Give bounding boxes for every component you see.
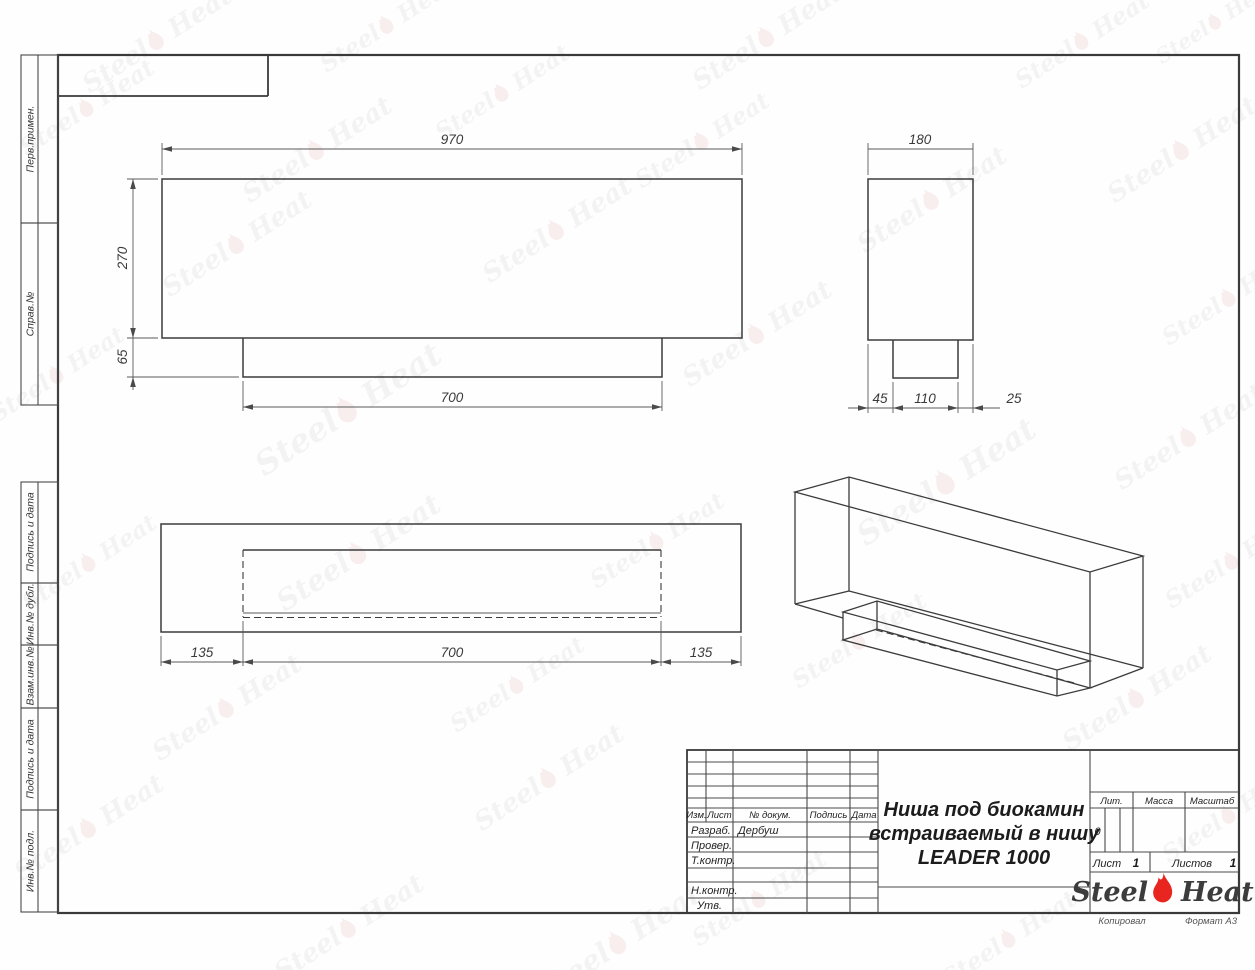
svg-text:Steel: Steel [315, 18, 386, 78]
flame-icon [1153, 873, 1172, 902]
svg-text:Heat: Heat [937, 141, 1013, 205]
tb-scale-label: Масштаб [1190, 796, 1235, 807]
svg-text:Heat: Heat [1233, 243, 1255, 301]
watermark: SteelHeat [445, 630, 590, 738]
svg-text:Steel: Steel [585, 534, 656, 594]
watermark: SteelHeat [850, 411, 1043, 554]
svg-text:Steel: Steel [270, 545, 357, 618]
svg-text:Steel: Steel [530, 935, 617, 970]
watermark: SteelHeat [630, 86, 775, 194]
tb-header-date: Дата [850, 810, 876, 821]
svg-text:Steel: Steel [850, 475, 944, 553]
svg-text:Steel: Steel [1160, 554, 1231, 614]
svg-text:Heat: Heat [762, 275, 838, 339]
tb-header-izm: Изм. [686, 810, 706, 821]
svg-text:Steel: Steel [477, 224, 555, 289]
tb-sheet-label: Лист [1092, 858, 1121, 870]
watermark: SteelHeat [17, 508, 162, 616]
svg-text:Heat: Heat [353, 334, 448, 415]
svg-text:Heat: Heat [554, 719, 630, 783]
tb-header-doc: № докум. [749, 810, 791, 821]
plan-view-dimensions: 135 700 135 [161, 621, 741, 666]
svg-text:Steel: Steel [469, 772, 547, 837]
svg-text:Heat: Heat [952, 411, 1043, 488]
svg-text:Heat: Heat [1142, 639, 1218, 703]
svg-text:Steel: Steel [787, 634, 858, 694]
svg-text:LEADER 1000: LEADER 1000 [918, 847, 1050, 869]
svg-text:Heat: Heat [1194, 378, 1255, 442]
watermark: SteelHeat [687, 0, 847, 96]
tb-lit-label: Лит. [1099, 796, 1122, 807]
watermark: SteelHeat [1102, 91, 1255, 210]
tb-row-prover: Провер. [691, 840, 732, 852]
margin-label-perv-primen: Перв.примен. [25, 106, 37, 173]
watermark: SteelHeat [247, 334, 448, 484]
svg-text:Heat: Heat [763, 844, 832, 902]
dim-plan-seg-a: 135 [191, 645, 214, 660]
brand-text-heat: Heat [1180, 877, 1254, 908]
dim-plan-seg-c: 135 [690, 645, 713, 660]
watermark: SteelHeat [315, 0, 460, 78]
margin-column: Перв.примен. Справ.№ Подпись и дата Инв.… [21, 55, 58, 912]
format-label: Формат А3 [1185, 916, 1238, 927]
dim-side-width: 180 [909, 132, 932, 147]
dim-side-seg-a: 45 [872, 391, 888, 406]
svg-text:Steel: Steel [687, 31, 765, 96]
watermark: SteelHeat [937, 884, 1082, 970]
svg-text:Heat: Heat [521, 630, 590, 688]
margin-label-sprav-no: Справ.№ [25, 292, 37, 337]
watermark: SteelHeat [477, 171, 637, 290]
watermark: SteelHeat [237, 91, 397, 210]
svg-text:Steel: Steel [852, 194, 930, 259]
svg-text:Steel: Steel [1010, 34, 1081, 94]
watermark: SteelHeat [787, 586, 932, 694]
dim-side-seg-b: 110 [914, 391, 936, 406]
tb-mass-label: Масса [1145, 796, 1173, 807]
svg-text:Heat: Heat [94, 769, 170, 833]
tb-row-nkontr: Н.контр. [691, 885, 738, 897]
watermark: SteelHeat [1109, 378, 1255, 497]
tb-header-list: Лист [706, 810, 732, 821]
dim-front-tab-height: 65 [115, 349, 130, 365]
svg-text:Heat: Heat [162, 0, 238, 45]
svg-text:Steel: Steel [269, 922, 347, 970]
svg-text:Heat: Heat [661, 486, 730, 544]
margin-label-vzam-inv: Взам.инв.№ [25, 646, 37, 705]
watermark: SteelHeat [269, 869, 429, 970]
tb-row-utv: Утв. [696, 900, 722, 912]
tb-sheet-number: 1 [1133, 856, 1140, 870]
svg-text:Heat: Heat [1086, 0, 1155, 45]
svg-text:Heat: Heat [93, 508, 162, 566]
svg-text:Steel: Steel [1157, 291, 1228, 351]
tb-row-razrab-name: Дербуш [736, 825, 779, 837]
watermark: SteelHeat [677, 275, 837, 394]
svg-text:Heat: Heat [1233, 760, 1255, 818]
svg-text:Heat: Heat [1218, 0, 1255, 25]
watermark: SteelHeat [1157, 243, 1255, 351]
watermark: SteelHeat [1160, 506, 1255, 614]
tb-row-razrab: Разраб. [691, 825, 731, 837]
svg-text:Heat: Heat [354, 869, 430, 933]
watermark: SteelHeat [530, 877, 707, 970]
copied-label: Копировал [1098, 916, 1146, 927]
watermark: SteelHeat [1057, 639, 1217, 758]
margin-label-podpis-data-2: Подпись и дата [25, 719, 37, 799]
document-title: Ниша под биокамин встраиваемый в нишу LE… [869, 799, 1100, 869]
watermark: SteelHeat [1010, 0, 1155, 94]
svg-text:Heat: Heat [391, 0, 460, 29]
svg-text:Heat: Heat [363, 487, 447, 558]
drawing-sheet: SteelHeatSteelHeatSteelHeatSteelHeatStee… [0, 0, 1255, 970]
brand-text-steel: Steel [1071, 877, 1148, 908]
svg-text:Heat: Heat [562, 171, 638, 235]
svg-text:Heat: Heat [772, 0, 848, 42]
svg-text:Heat: Heat [1187, 91, 1255, 155]
watermark: SteelHeat [0, 320, 130, 428]
dim-front-tab-width: 700 [441, 390, 464, 405]
watermark: SteelHeat [585, 486, 730, 594]
footer-labels: Копировал Формат А3 [1098, 916, 1237, 927]
svg-text:Heat: Heat [322, 91, 398, 155]
svg-text:Steel: Steel [1102, 144, 1180, 209]
margin-label-inv-podl: Инв.№ подл. [25, 830, 37, 892]
watermark: SteelHeat [852, 141, 1012, 260]
svg-text:Steel: Steel [157, 238, 235, 303]
watermark: SteelHeat [469, 719, 629, 838]
dim-side-seg-c: 25 [1005, 391, 1022, 406]
dim-plan-seg-b: 700 [441, 645, 464, 660]
dim-front-width: 970 [441, 132, 464, 147]
svg-text:встраиваемый в нишу: встраиваемый в нишу [869, 823, 1100, 845]
svg-text:Heat: Heat [706, 86, 775, 144]
tb-row-tkontr: Т.контр. [691, 855, 735, 867]
svg-text:Steel: Steel [147, 702, 225, 767]
svg-text:Heat: Heat [506, 38, 575, 96]
tb-sheets-number: 1 [1230, 856, 1237, 870]
svg-text:Steel: Steel [445, 678, 516, 738]
brand-logo: Steel Heat [1071, 873, 1254, 908]
margin-label-inv-dubl: Инв.№ дубл. [25, 583, 37, 645]
tb-lit-value: 0 [1094, 826, 1101, 838]
svg-text:Ниша под биокамин: Ниша под биокамин [884, 799, 1085, 821]
svg-text:Steel: Steel [630, 134, 701, 194]
tb-header-sign: Подпись [810, 810, 848, 821]
svg-text:Steel: Steel [1109, 431, 1187, 496]
svg-text:Steel: Steel [937, 932, 1008, 970]
margin-label-podpis-data-1: Подпись и дата [25, 492, 37, 572]
watermark: SteelHeat [157, 185, 317, 304]
tb-sheets-label: Листов [1171, 858, 1212, 870]
watermark: SteelHeat [270, 487, 447, 618]
svg-text:Steel: Steel [0, 368, 56, 428]
svg-text:Steel: Steel [1057, 692, 1135, 757]
watermark: SteelHeat [147, 649, 307, 768]
svg-text:Steel: Steel [247, 401, 346, 484]
svg-text:Steel: Steel [1151, 16, 1214, 69]
front-view [162, 179, 742, 377]
dim-front-height: 270 [115, 246, 130, 270]
